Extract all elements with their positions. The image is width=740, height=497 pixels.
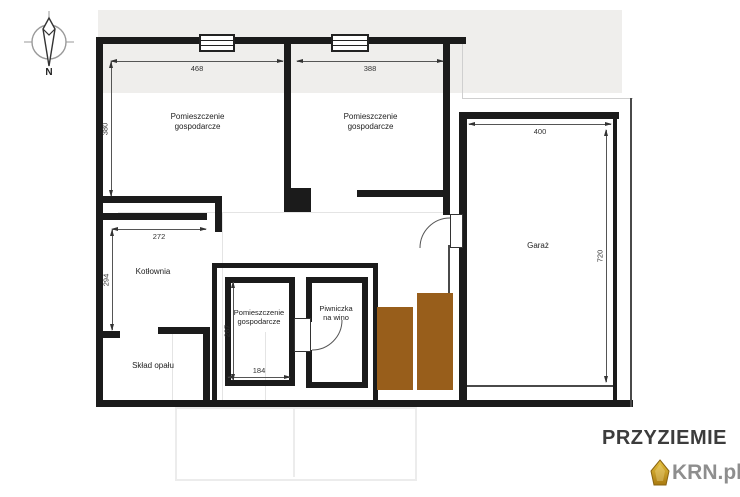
terrace-outline (175, 407, 417, 481)
outline-line (222, 212, 223, 400)
wine-door-leaf (294, 318, 311, 352)
dim-width-garage: 400 (469, 124, 611, 125)
wall-garage-top (459, 112, 619, 119)
krn-house-icon (650, 459, 670, 486)
room-label-utility-bottom: Pomieszczenie gospodarcze (226, 308, 292, 326)
wall-wine-bottom (306, 382, 368, 388)
room-label-utility-top-mid: Pomieszczenie gospodarcze (303, 112, 438, 132)
wall-divider-foot (284, 188, 311, 212)
wall-room2-bottom (357, 190, 450, 197)
room-label-fuel: Skład opału (110, 361, 196, 371)
dim-height-room1: 380 (111, 62, 112, 196)
dim-width-room1: 468 (111, 61, 283, 62)
wall-fuel-stub-left (96, 331, 120, 338)
window-top-mid (331, 34, 369, 52)
dim-label: 400 (534, 127, 547, 136)
wall-garage-right-outer (630, 98, 632, 407)
wall-smallroom-bottom (225, 380, 295, 386)
dim-width-smallroom: 184 (228, 377, 290, 378)
floor-plan-canvas: 468 380 388 400 720 272 294 287 184 Pomi… (0, 0, 740, 497)
window-top-left (199, 34, 235, 52)
stair-block-left (377, 307, 413, 390)
dim-width-boiler: 272 (112, 229, 206, 230)
stair-block-right (417, 293, 453, 390)
dim-width-room2: 388 (297, 61, 443, 62)
wall-outer-top (96, 37, 466, 44)
wall-outer-left (96, 37, 103, 407)
wall-block-left (212, 263, 217, 400)
dim-label: 380 (101, 123, 110, 136)
wall-room1-bottom (96, 196, 222, 203)
garage-door-leaf (450, 214, 463, 248)
room-label-boiler: Kotłownia (113, 267, 193, 277)
dim-label: 294 (102, 274, 111, 287)
wall-garage-left (459, 112, 467, 400)
dim-height-garage: 720 (606, 130, 607, 382)
wall-smallroom-top (225, 277, 295, 283)
compass-north-label: N (45, 67, 52, 76)
wall-boiler-top (103, 213, 207, 220)
wall-garage-right (613, 112, 617, 407)
room-label-wine: Piwniczka na wino (305, 304, 367, 322)
plan-title: PRZYZIEMIE (602, 427, 727, 450)
dim-label: 468 (191, 64, 204, 73)
terrace-divider-line (293, 407, 295, 477)
dim-label: 720 (596, 250, 605, 263)
compass-icon: N (22, 4, 76, 76)
wall-top-rooms-divider (284, 44, 291, 194)
wall-hall-stub (443, 190, 450, 215)
dim-label: 272 (153, 232, 166, 241)
wall-wine-right (362, 277, 368, 388)
watermark: KRN.pl (650, 459, 740, 486)
wall-garage-floor-edge (467, 385, 613, 387)
dim-height-boiler: 294 (112, 230, 113, 330)
wall-block-top (212, 263, 378, 268)
outline-line (462, 44, 463, 98)
dim-label: 287 (223, 325, 232, 338)
wall-hall-stub-lower (448, 245, 450, 293)
dim-label: 388 (364, 64, 377, 73)
wall-room2-right (443, 44, 450, 190)
dim-label: 184 (253, 366, 266, 375)
dim-height-smallroom: 287 (233, 282, 234, 380)
outline-line (462, 98, 633, 99)
room-label-garage: Garaż (495, 241, 581, 251)
wall-wine-top (306, 277, 368, 283)
wall-fuel-right (203, 327, 210, 400)
wall-room1-bottom-jog (215, 196, 222, 232)
room-label-utility-top-left: Pomieszczenie gospodarcze (130, 112, 265, 132)
wall-outer-bottom (96, 400, 633, 407)
watermark-text: KRN.pl (672, 461, 740, 485)
